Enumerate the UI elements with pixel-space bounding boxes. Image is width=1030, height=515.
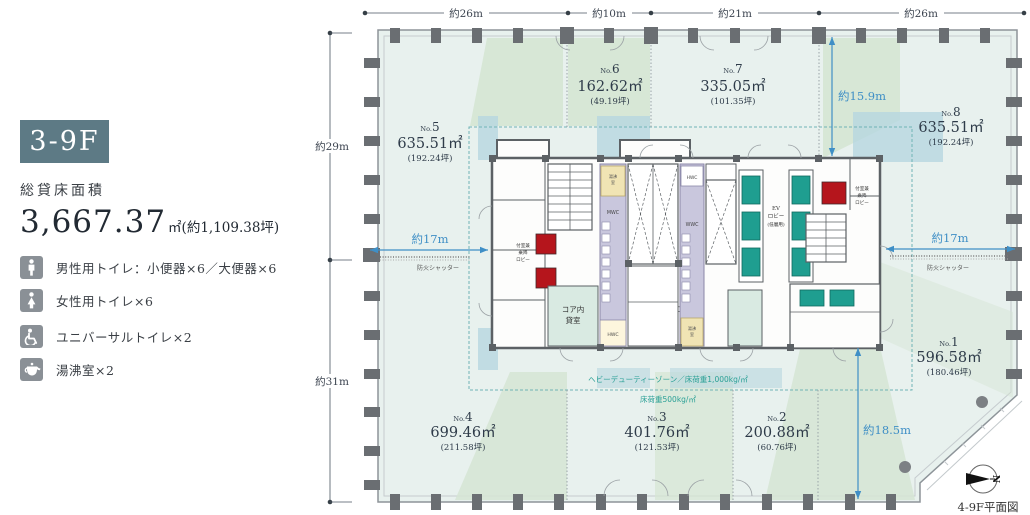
depth-upper-label: 約15.9m	[838, 89, 886, 103]
dim-top-1: 約26m	[449, 7, 483, 20]
compass: N	[966, 465, 1000, 493]
svg-text:162.62㎡: 162.62㎡	[577, 78, 643, 95]
svg-text:635.51㎡: 635.51㎡	[397, 135, 463, 152]
emergency-elevator	[536, 268, 556, 288]
facility-legend: 男性用トイレ：小便器×6／大便器×6 女性用トイレ×6 ユニバーサルトイレ×2 …	[20, 256, 320, 381]
svg-text:ロビー: ロビー	[768, 212, 785, 220]
floor-plan-page: 付室兼 乗降 ロビー コア内 貸室 湯沸室 MWC HWC	[0, 0, 1030, 515]
svg-text:(101.35坪): (101.35坪)	[711, 96, 756, 107]
legend-row-female-toilet: 女性用トイレ×6	[20, 289, 320, 312]
legend-row-universal-toilet: ユニバーサルトイレ×2	[20, 325, 320, 348]
span-right-label: 約17m	[931, 231, 968, 245]
total-area-label: 総貸床面積	[20, 180, 320, 200]
svg-text:ロビー: ロビー	[855, 199, 869, 206]
svg-text:乗降: 乗降	[518, 249, 528, 256]
svg-text:室: 室	[690, 331, 694, 337]
wwc-label: WWC	[686, 222, 699, 228]
stairs-left	[548, 164, 592, 230]
plan-caption: 4-9F平面図	[958, 500, 1019, 514]
legend-label: 女性用トイレ×6	[56, 291, 153, 310]
svg-text:ロビー: ロビー	[516, 256, 530, 263]
fire-shutter-left-label: 防火シャッター	[417, 264, 459, 272]
area-unit: ㎡(約1,109.38坪)	[168, 220, 279, 236]
elevator-shafts	[628, 164, 678, 346]
svg-text:(低層用): (低層用)	[767, 221, 785, 228]
svg-text:付室兼: 付室兼	[516, 242, 530, 249]
area-number: 3,667.37	[20, 204, 166, 240]
floor-badge: 3-9F	[20, 120, 109, 163]
dim-top-4: 約26m	[904, 7, 938, 20]
male-toilet-icon	[20, 256, 43, 279]
svg-text:335.05㎡: 335.05㎡	[700, 78, 766, 95]
compass-north-label: N	[990, 475, 1000, 483]
hwc-label: HWC	[687, 175, 698, 181]
svg-text:(192.24坪): (192.24坪)	[929, 137, 974, 148]
kettle-icon	[20, 358, 43, 381]
legend-row-kettle: 湯沸室×2	[20, 358, 320, 381]
svg-text:(60.76坪): (60.76坪)	[757, 442, 796, 453]
svg-text:EV: EV	[772, 206, 781, 212]
dim-left-upper: 約29m	[315, 140, 349, 153]
stairs-right	[806, 214, 846, 262]
svg-text:635.51㎡: 635.51㎡	[918, 119, 984, 136]
emergency-elevator	[822, 182, 846, 204]
svg-text:(121.53坪): (121.53坪)	[635, 442, 680, 453]
svg-text:湯沸: 湯沸	[688, 325, 696, 332]
svg-text:200.88㎡: 200.88㎡	[744, 424, 810, 441]
svg-text:(211.58坪): (211.58坪)	[441, 442, 486, 453]
hwc-label: HWC	[607, 332, 618, 338]
svg-text:付室兼: 付室兼	[855, 185, 869, 192]
fire-shutter-right-label: 防火シャッター	[927, 264, 969, 272]
legend-label: 湯沸室×2	[56, 360, 114, 379]
mwc-label: MWC	[607, 210, 620, 216]
svg-text:室: 室	[611, 179, 615, 185]
svg-text:コア内: コア内	[562, 304, 585, 314]
svg-text:(180.46坪): (180.46坪)	[927, 367, 972, 378]
svg-text:湯沸: 湯沸	[609, 173, 617, 180]
emergency-elevator	[536, 234, 556, 254]
top-dimension: 約26m 約10m 約21m 約26m	[363, 6, 1027, 20]
span-left-label: 約17m	[411, 232, 448, 246]
dim-top-2: 約10m	[592, 7, 626, 20]
dim-top-3: 約21m	[718, 7, 752, 20]
total-area-value: 3,667.37㎡(約1,109.38坪)	[20, 204, 320, 240]
universal-toilet-icon	[20, 325, 43, 348]
legend-label: 男性用トイレ：小便器×6／大便器×6	[56, 258, 277, 277]
depth-lower-label: 約18.5m	[863, 423, 911, 437]
heavy-duty-label: ヘビーデューティーゾーン／床荷重1,000kg/㎡	[588, 374, 748, 384]
female-toilet-icon	[20, 289, 43, 312]
legend-row-male-toilet: 男性用トイレ：小便器×6／大便器×6	[20, 256, 320, 279]
svg-text:699.46㎡: 699.46㎡	[430, 424, 496, 441]
svg-text:401.76㎡: 401.76㎡	[624, 424, 690, 441]
svg-text:596.58㎡: 596.58㎡	[916, 349, 982, 366]
dim-left-lower: 約31m	[315, 375, 349, 388]
svg-text:貸室: 貸室	[566, 315, 581, 325]
svg-text:(192.24坪): (192.24坪)	[408, 153, 453, 164]
svg-text:(49.19坪): (49.19坪)	[590, 96, 629, 107]
floor-load-label: 床荷重500kg/㎡	[640, 394, 696, 404]
legend-label: ユニバーサルトイレ×2	[56, 327, 192, 346]
info-panel: 3-9F 総貸床面積 3,667.37㎡(約1,109.38坪) 男性用トイレ：…	[20, 120, 320, 391]
